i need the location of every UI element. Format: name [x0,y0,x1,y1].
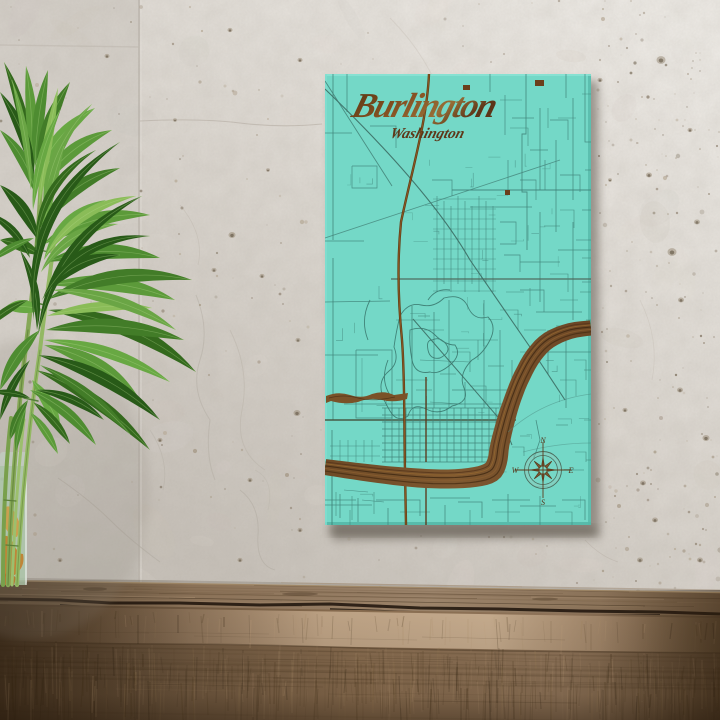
svg-text:Washington: Washington [388,125,467,142]
svg-text:S: S [541,498,545,507]
svg-text:N: N [539,436,546,445]
svg-text:E: E [568,466,574,475]
svg-text:Burlington: Burlington [347,86,502,125]
